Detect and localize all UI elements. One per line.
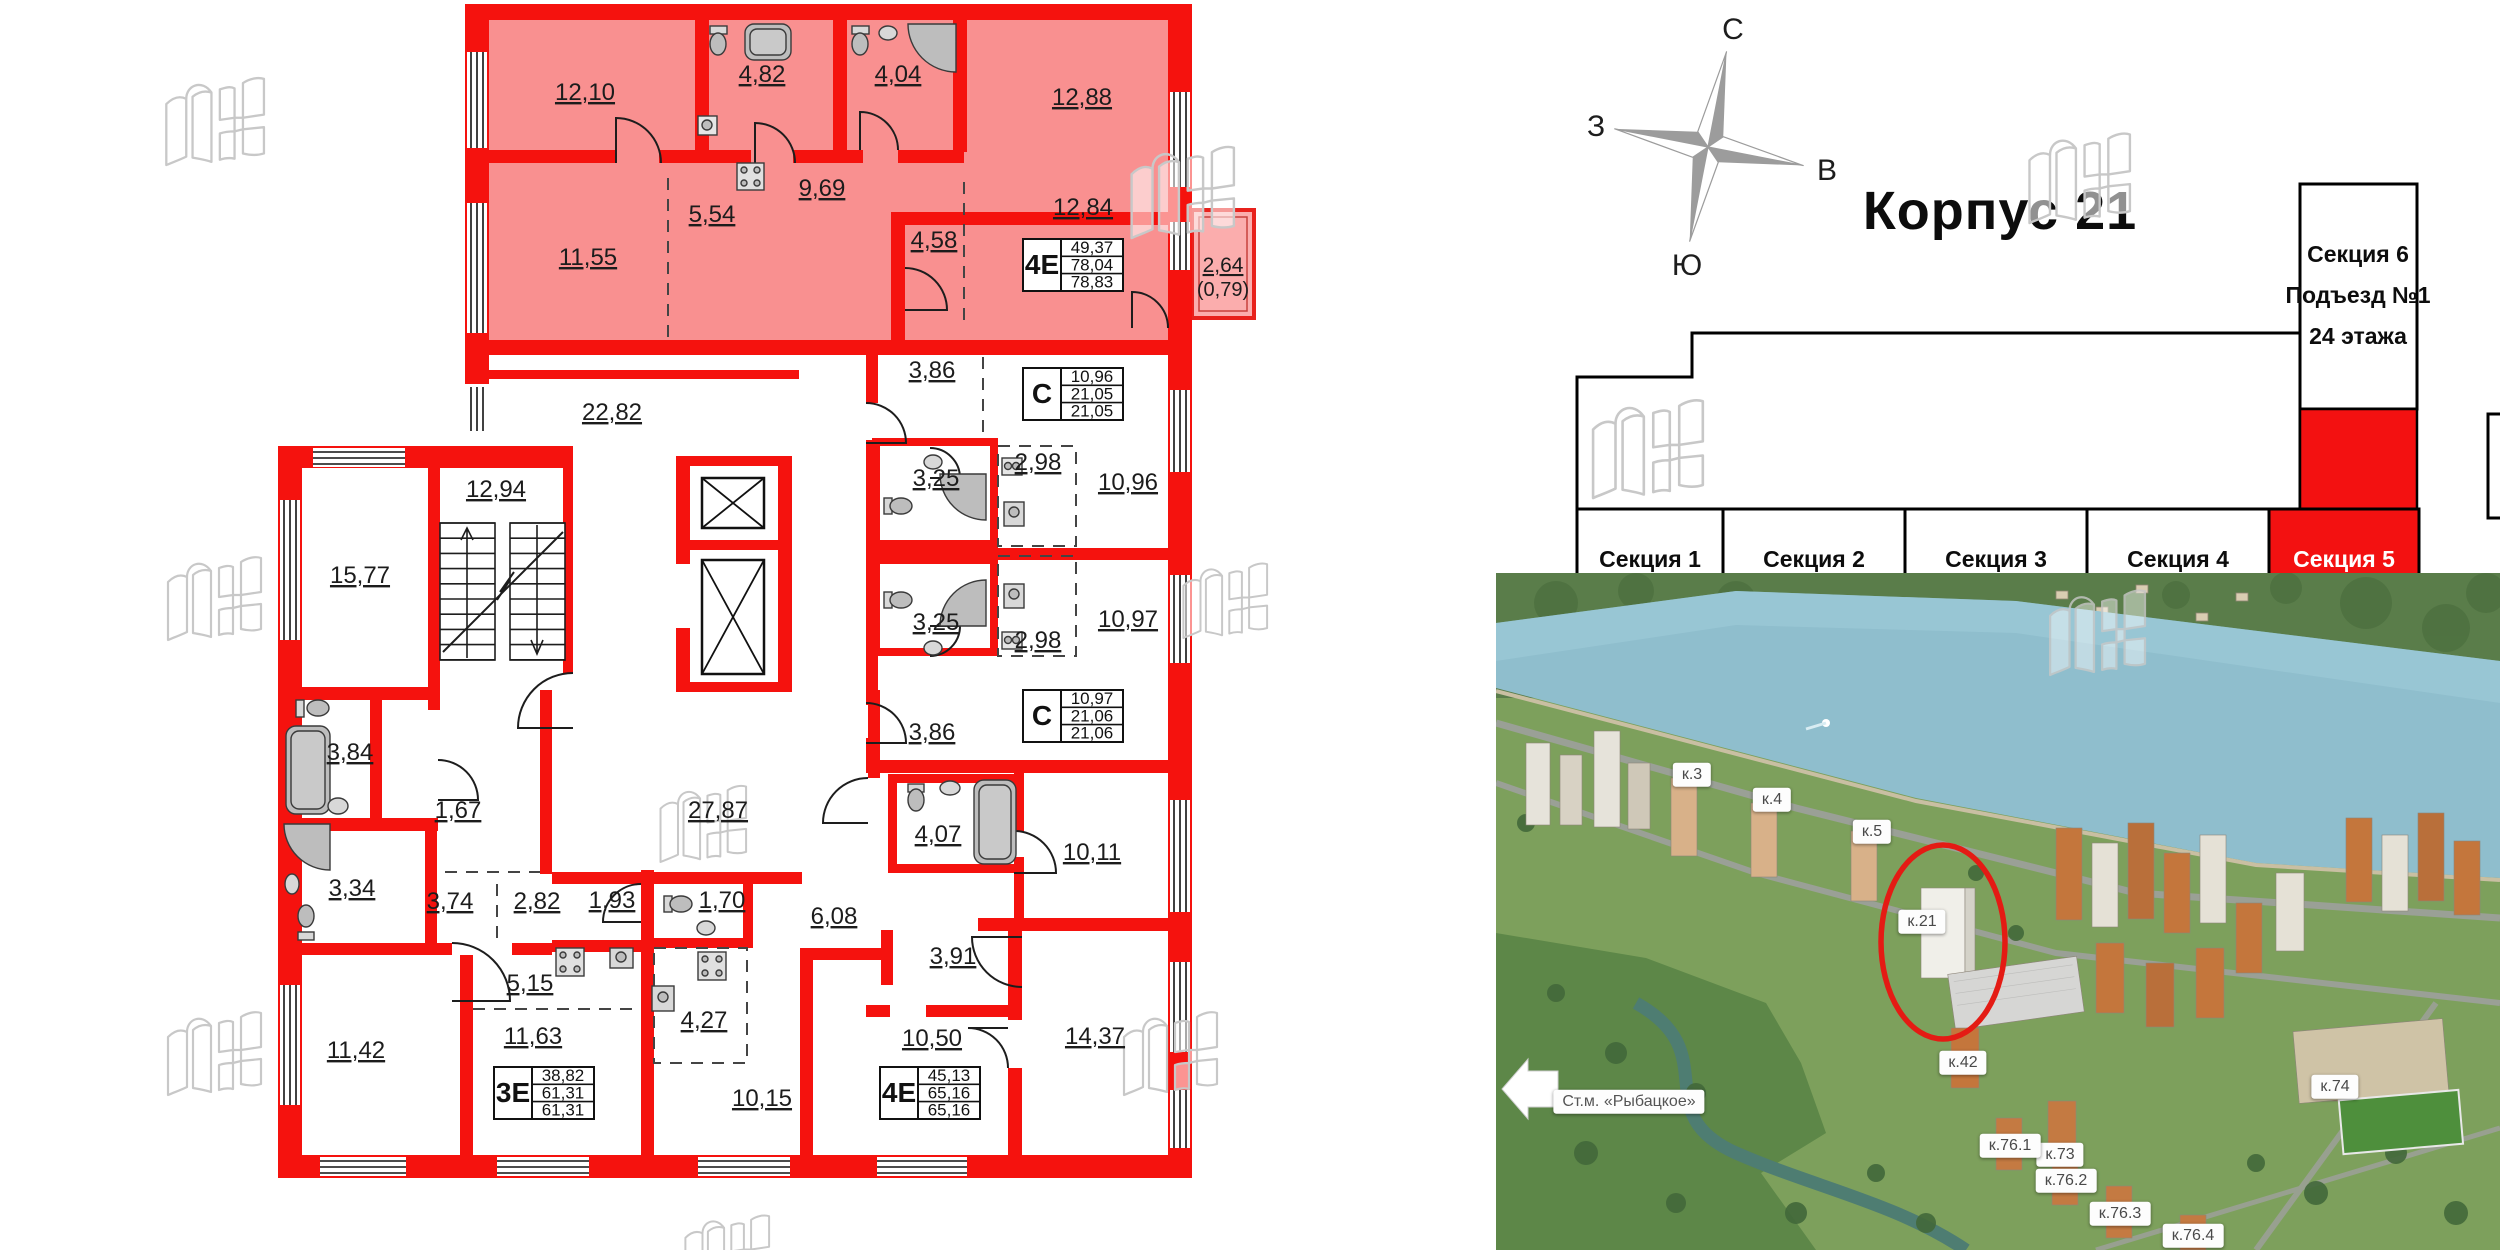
room-area-label: 4,04 — [875, 61, 922, 88]
svg-text:65,16: 65,16 — [928, 1083, 971, 1102]
room-area-label: 2,82 — [514, 888, 561, 915]
svg-text:21,05: 21,05 — [1071, 402, 1114, 421]
svg-text:4Е: 4Е — [1025, 249, 1059, 280]
svg-text:78,83: 78,83 — [1071, 273, 1114, 292]
section-5-tower[interactable] — [2300, 409, 2417, 509]
apartment-stamp: С10,9721,0621,06 — [1023, 689, 1123, 743]
svg-text:4Е: 4Е — [882, 1077, 916, 1108]
room-area-label: 6,08 — [811, 903, 858, 930]
room-area-label: 27,87 — [688, 797, 748, 824]
room-area-label: 1,70 — [699, 887, 746, 914]
svg-text:21,06: 21,06 — [1071, 706, 1114, 725]
room-area-label: 10,97 — [1098, 606, 1158, 633]
room-area-label: 10,96 — [1098, 469, 1158, 496]
room-area-label: 1,67 — [435, 797, 482, 824]
section-label: Секция 2 — [1763, 546, 1865, 572]
section-label: Секция 1 — [1599, 546, 1701, 572]
room-area-label: 3,91 — [930, 943, 977, 970]
room-area-label: 3,34 — [329, 875, 376, 902]
apartment-stamp: 3Е38,8261,3161,31 — [494, 1066, 594, 1120]
svg-text:65,16: 65,16 — [928, 1101, 971, 1120]
section-label: Секция 4 — [2127, 546, 2229, 572]
room-area-label: 9,69 — [799, 175, 846, 202]
room-area-label: 12,10 — [555, 79, 615, 106]
room-area-label: 3,84 — [327, 739, 374, 766]
section-label: Секция 5 — [2293, 546, 2395, 572]
room-area-label: 11,63 — [504, 1023, 562, 1050]
room-area-label: 11,42 — [327, 1037, 385, 1064]
svg-text:61,31: 61,31 — [542, 1083, 585, 1102]
svg-text:21,05: 21,05 — [1071, 384, 1114, 403]
apartment-stamp: С10,9621,0521,05 — [1023, 367, 1123, 421]
room-area-label: 4,82 — [739, 61, 786, 88]
svg-text:78,04: 78,04 — [1071, 255, 1114, 274]
room-area-label: 4,58 — [911, 227, 958, 254]
page: 12,104,824,0412,885,549,6911,554,5812,84… — [0, 0, 2500, 1250]
room-area-label: 4,27 — [681, 1007, 728, 1034]
room-area-label: 10,11 — [1063, 839, 1121, 866]
elevators — [702, 478, 764, 674]
room-area-label: 12,94 — [466, 476, 526, 503]
room-area-label: 14,37 — [1065, 1023, 1125, 1050]
room-area-label: 22,82 — [582, 399, 642, 426]
section-label: 24 этажа — [2309, 323, 2407, 349]
room-area-label: 5,54 — [689, 201, 736, 228]
room-area-label: 3,25 — [913, 609, 960, 636]
edge-partial-box — [2488, 414, 2500, 518]
room-area-label: 3,86 — [909, 357, 956, 384]
svg-text:49,37: 49,37 — [1071, 238, 1114, 257]
svg-text:С: С — [1032, 378, 1052, 409]
room-area-label: 3,86 — [909, 719, 956, 746]
room-area-label: 2,98 — [1015, 627, 1062, 654]
room-area-label: 2,98 — [1015, 449, 1062, 476]
room-area-label: (0,79) — [1197, 279, 1249, 301]
room-area-label: 15,77 — [330, 562, 390, 589]
apartment-stamp: 4Е45,1365,1665,16 — [880, 1066, 980, 1120]
svg-text:21,06: 21,06 — [1071, 724, 1114, 743]
room-area-label: 3,25 — [913, 465, 960, 492]
svg-text:С: С — [1032, 700, 1052, 731]
room-area-label: 11,55 — [559, 244, 617, 271]
room-area-label: 5,15 — [507, 970, 554, 997]
svg-text:3Е: 3Е — [496, 1077, 530, 1108]
svg-text:10,97: 10,97 — [1071, 689, 1114, 708]
svg-text:61,31: 61,31 — [542, 1101, 585, 1120]
aerial-photo — [1496, 573, 2500, 1250]
room-area-label: 4,07 — [915, 821, 962, 848]
room-area-label: 10,15 — [732, 1085, 792, 1112]
room-area-label: 12,88 — [1052, 84, 1112, 111]
room-area-label: 2,64 — [1203, 254, 1244, 277]
compass-north-label: С — [1722, 13, 1744, 47]
svg-text:38,82: 38,82 — [542, 1066, 585, 1085]
room-area-label: 12,84 — [1053, 194, 1113, 221]
section-label: Секция 6 — [2307, 241, 2409, 267]
compass-west-label: З — [1587, 110, 1605, 144]
section-label: Подъезд №1 — [2286, 282, 2431, 308]
stairs — [440, 523, 565, 660]
floor-plan: 12,104,824,0412,885,549,6911,554,5812,84… — [0, 0, 1280, 1250]
section-label: Секция 3 — [1945, 546, 2047, 572]
svg-text:10,96: 10,96 — [1071, 367, 1114, 386]
room-area-label: 1,93 — [589, 887, 636, 914]
svg-text:45,13: 45,13 — [928, 1066, 971, 1085]
room-area-label: 3,74 — [427, 888, 474, 915]
room-area-label: 10,50 — [902, 1025, 962, 1052]
apartment-stamp: 4Е49,3778,0478,83 — [1023, 238, 1123, 292]
